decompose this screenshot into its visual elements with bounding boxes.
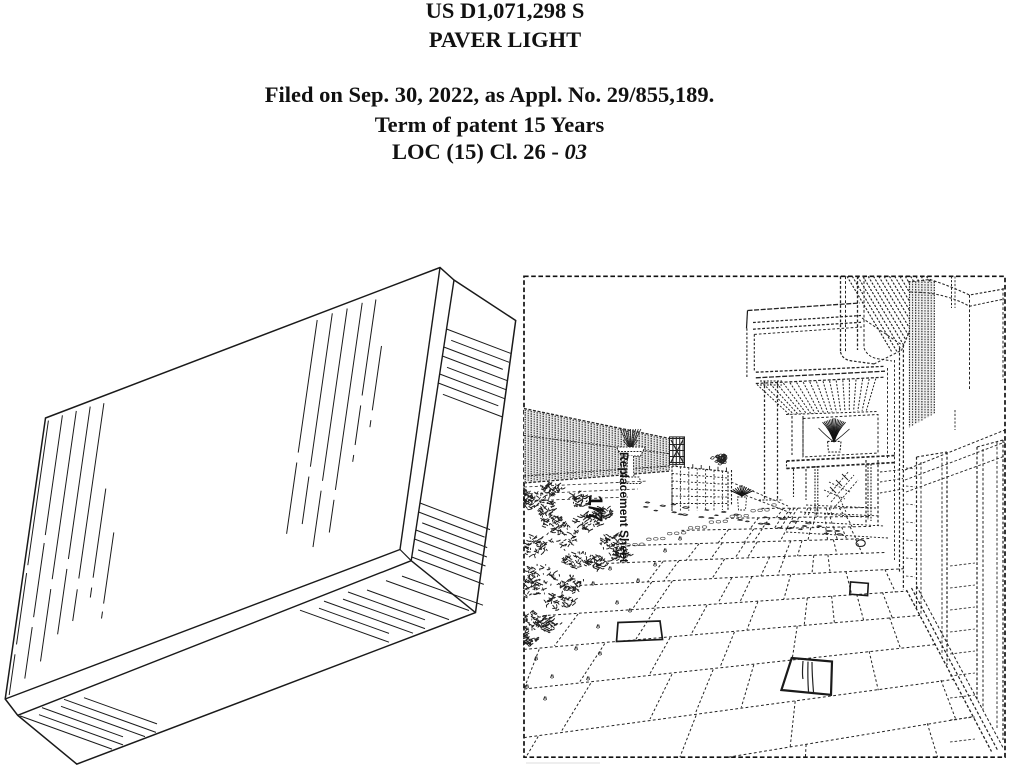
svg-text:1/7: 1/7 [584, 495, 606, 522]
svg-text:Replacement Sheet: Replacement Sheet [617, 452, 631, 563]
